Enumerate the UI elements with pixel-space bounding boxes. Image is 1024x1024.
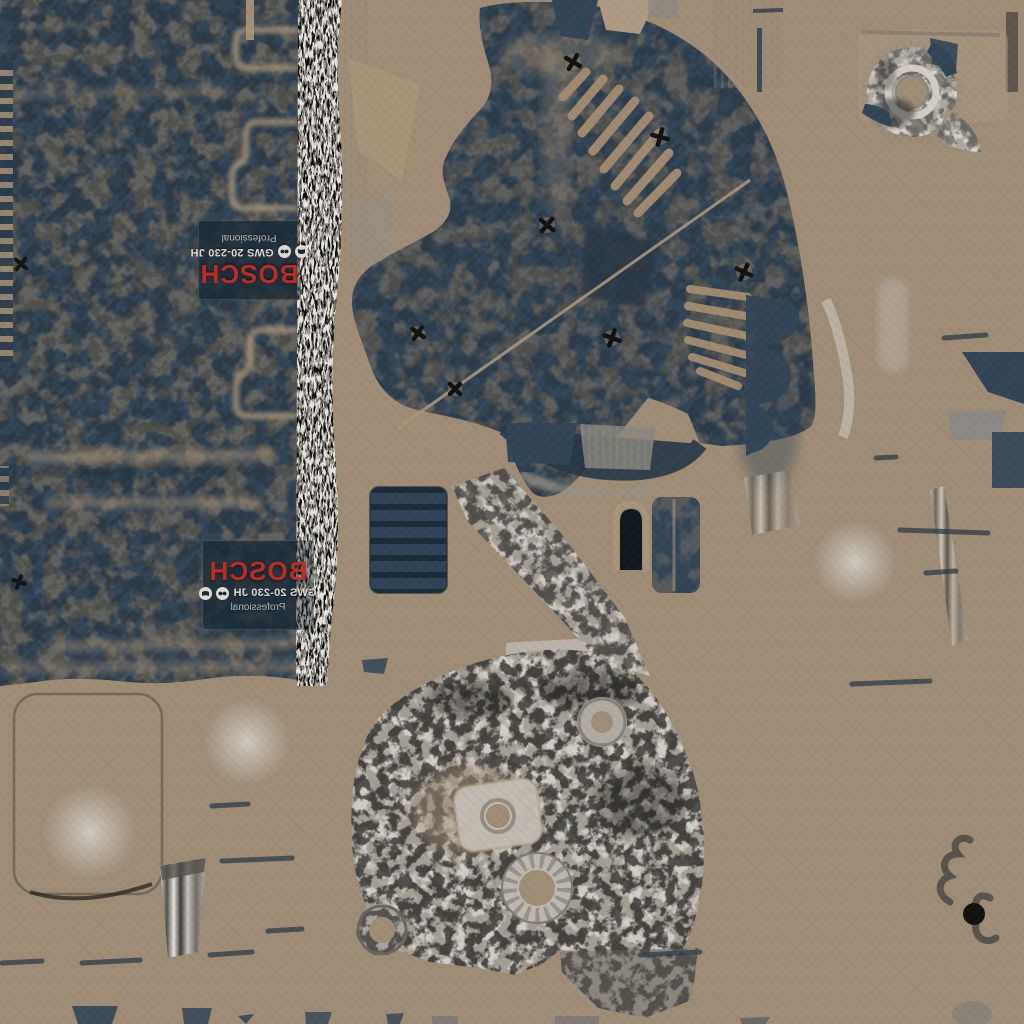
texture-atlas-canvas: BOSCH GWS 20-230 JH Professional BOSCH <box>0 0 1024 1024</box>
uv-atlas-graphics <box>0 0 1024 1024</box>
safety-goggles-icon <box>216 587 229 600</box>
film-grain-overlay <box>0 0 1024 1024</box>
bosch-decal-top: BOSCH GWS 20-230 JH Professional <box>198 220 300 300</box>
model-row: GWS 20-230 JH <box>190 246 307 259</box>
model-number-text: GWS 20-230 JH <box>233 587 316 599</box>
series-text: Professional <box>230 602 285 613</box>
read-manual-icon <box>199 587 212 600</box>
bosch-decal-bottom: BOSCH GWS 20-230 JH Professional <box>202 540 314 630</box>
read-manual-icon <box>295 246 308 259</box>
model-row: GWS 20-230 JH <box>199 587 316 600</box>
safety-goggles-icon <box>278 246 291 259</box>
bosch-logo-text: BOSCH <box>209 558 308 584</box>
bosch-logo-text: BOSCH <box>200 262 299 288</box>
series-text: Professional <box>221 233 276 244</box>
model-number-text: GWS 20-230 JH <box>190 246 273 258</box>
